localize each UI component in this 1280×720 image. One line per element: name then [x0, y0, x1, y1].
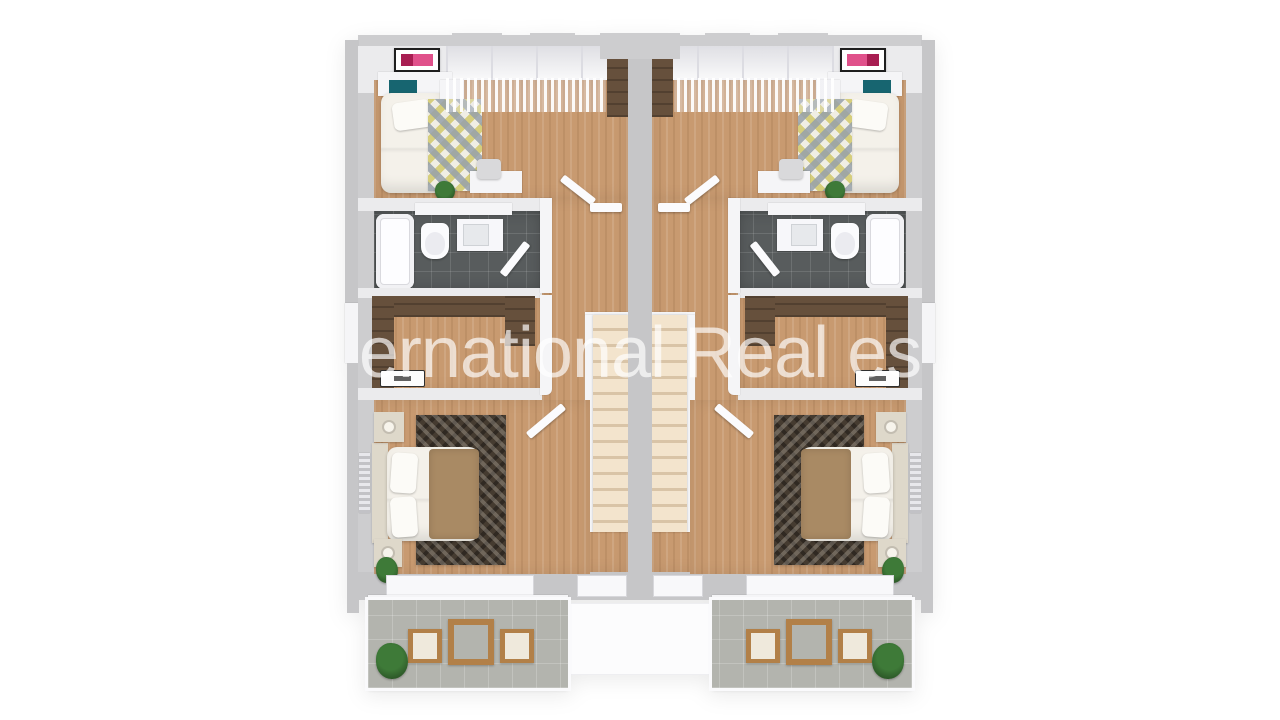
toilet — [421, 223, 449, 259]
desk-chair — [477, 159, 501, 179]
wall-stub-right — [728, 295, 740, 395]
nightstand — [374, 412, 404, 442]
balcony-plant-right — [872, 643, 904, 679]
pillow — [390, 496, 419, 538]
nightstand-right — [876, 412, 906, 442]
wall-stub — [540, 198, 552, 293]
pillow-right — [862, 496, 891, 538]
toilet-right — [831, 223, 859, 259]
chair-seat — [413, 633, 437, 659]
chair-seat — [505, 633, 529, 659]
wardrobe — [607, 55, 628, 117]
balcony-table — [448, 619, 494, 665]
wardrobe-right — [652, 55, 673, 117]
pillow-right — [847, 98, 889, 131]
balcony-chair-right — [746, 629, 780, 663]
radiator — [359, 453, 370, 513]
headboard — [372, 443, 388, 543]
building — [345, 33, 935, 690]
stair-window-right — [653, 575, 703, 597]
pillow-right — [862, 452, 891, 494]
floorplan-render: ernational Real es — [0, 0, 1280, 720]
wall-art-frame — [394, 48, 440, 72]
landing-door-right — [658, 203, 690, 212]
wall-art-frame-right — [840, 48, 886, 72]
party-wall — [628, 36, 652, 600]
curtains — [446, 78, 606, 112]
pillow — [391, 98, 433, 131]
unit-right — [640, 33, 935, 690]
pillow — [390, 452, 419, 494]
balcony-chair — [408, 629, 442, 663]
bathroom-shelf — [415, 203, 512, 215]
unit-left — [345, 33, 640, 690]
door-mat-right — [855, 370, 900, 387]
stair-window — [577, 575, 627, 597]
side-roof-white-right — [921, 303, 935, 363]
side-roof-white — [345, 303, 359, 363]
balcony-window-right — [746, 575, 894, 597]
wall-art — [401, 54, 433, 66]
landing-door — [590, 203, 622, 212]
washbasin-vanity-right — [777, 219, 823, 251]
bed-runner-right — [801, 449, 851, 539]
bed-runner — [429, 449, 479, 539]
bathtub — [376, 214, 414, 289]
closet-wardrobe-right — [505, 296, 535, 346]
balcony-chair — [500, 629, 534, 663]
washbasin-vanity — [457, 219, 503, 251]
balcony-chair-right — [838, 629, 872, 663]
interior-wall — [358, 388, 542, 400]
headboard-right — [892, 443, 908, 543]
desk-chair-right — [779, 159, 803, 179]
wall-stub — [540, 295, 552, 395]
closet-wardrobe-right-right — [745, 296, 775, 346]
chair-seat-right — [843, 633, 867, 659]
balcony-window — [386, 575, 534, 597]
curtains-right — [674, 78, 834, 112]
interior-wall-right — [738, 388, 922, 400]
chair-seat-right — [751, 633, 775, 659]
staircase-right — [652, 315, 687, 532]
radiator-right — [910, 453, 921, 513]
balcony-table-right — [786, 619, 832, 665]
side-roof-strip-right — [921, 363, 933, 613]
staircase — [593, 315, 628, 532]
closet-wardrobe-top — [390, 296, 512, 317]
bathroom-shelf-right — [768, 203, 865, 215]
side-roof-strip-right — [921, 40, 935, 303]
closet-wardrobe-top-right — [768, 296, 890, 317]
wall-art-right — [847, 54, 879, 66]
party-wall-cap — [600, 33, 680, 59]
bathtub-right — [866, 214, 904, 289]
side-roof-strip — [345, 40, 359, 303]
wall-stub-right — [728, 198, 740, 293]
door-mat — [380, 370, 425, 387]
balcony-plant — [376, 643, 408, 679]
